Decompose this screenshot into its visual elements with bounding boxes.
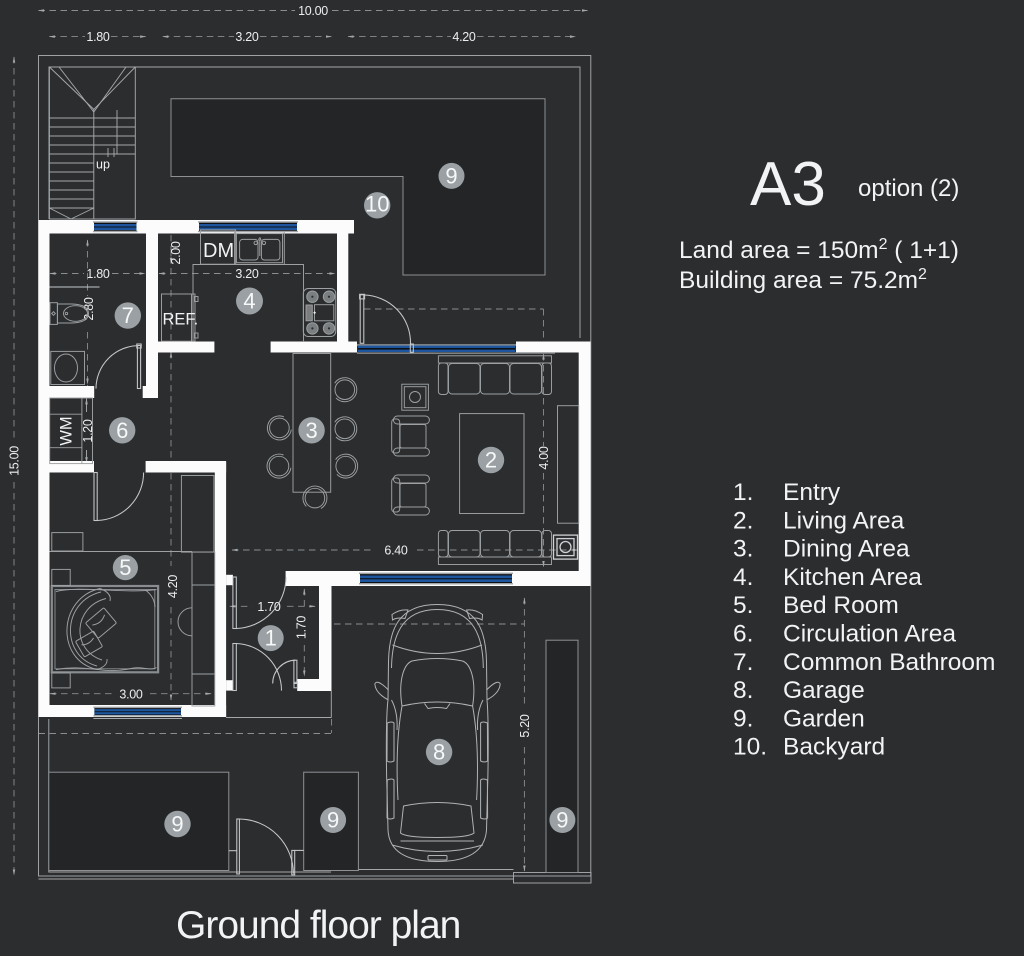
svg-text:3.20: 3.20 bbox=[235, 30, 258, 44]
svg-text:2.00: 2.00 bbox=[169, 241, 183, 264]
svg-text:A3: A3 bbox=[750, 150, 826, 219]
svg-text:9.Garden: 9.Garden bbox=[733, 705, 865, 732]
svg-text:2: 2 bbox=[485, 448, 497, 473]
svg-text:Building area = 75.2m2: Building area = 75.2m2 bbox=[679, 266, 927, 294]
svg-text:1.70: 1.70 bbox=[257, 600, 280, 614]
svg-text:1.80: 1.80 bbox=[86, 30, 109, 44]
svg-text:3.20: 3.20 bbox=[235, 267, 258, 281]
svg-text:7: 7 bbox=[122, 303, 134, 328]
svg-text:8: 8 bbox=[433, 740, 445, 765]
svg-text:Ground floor plan: Ground floor plan bbox=[176, 904, 460, 947]
svg-text:9: 9 bbox=[556, 808, 568, 833]
svg-text:4.00: 4.00 bbox=[537, 446, 551, 469]
svg-text:10.Backyard: 10.Backyard bbox=[733, 734, 885, 761]
svg-text:2.80: 2.80 bbox=[82, 297, 96, 320]
svg-text:9: 9 bbox=[445, 163, 457, 188]
svg-text:3: 3 bbox=[305, 418, 317, 443]
svg-text:9: 9 bbox=[171, 812, 183, 837]
svg-text:8.Garage: 8.Garage bbox=[733, 677, 865, 704]
svg-text:1.70: 1.70 bbox=[295, 616, 309, 639]
svg-text:5: 5 bbox=[119, 555, 131, 580]
svg-text:REF.: REF. bbox=[163, 311, 199, 329]
svg-text:9: 9 bbox=[327, 808, 339, 833]
svg-text:4: 4 bbox=[243, 289, 255, 314]
svg-text:DM: DM bbox=[203, 240, 234, 262]
svg-text:3.00: 3.00 bbox=[119, 687, 142, 701]
svg-text:option (2): option (2) bbox=[858, 175, 959, 202]
svg-text:4.20: 4.20 bbox=[452, 30, 475, 44]
svg-text:1.Entry: 1.Entry bbox=[733, 479, 841, 506]
svg-text:WM: WM bbox=[58, 416, 76, 445]
svg-text:15.00: 15.00 bbox=[8, 446, 22, 476]
svg-text:10: 10 bbox=[365, 192, 389, 217]
svg-text:4.20: 4.20 bbox=[166, 575, 180, 598]
svg-text:1: 1 bbox=[265, 626, 277, 651]
svg-text:10.00: 10.00 bbox=[298, 4, 328, 18]
svg-text:6.40: 6.40 bbox=[384, 544, 407, 558]
svg-text:5.20: 5.20 bbox=[518, 714, 532, 737]
svg-text:Land area = 150m2 ( 1+1): Land area = 150m2 ( 1+1) bbox=[679, 236, 959, 264]
svg-text:6: 6 bbox=[116, 418, 128, 443]
svg-text:up: up bbox=[96, 158, 110, 172]
svg-text:1.80: 1.80 bbox=[86, 267, 109, 281]
